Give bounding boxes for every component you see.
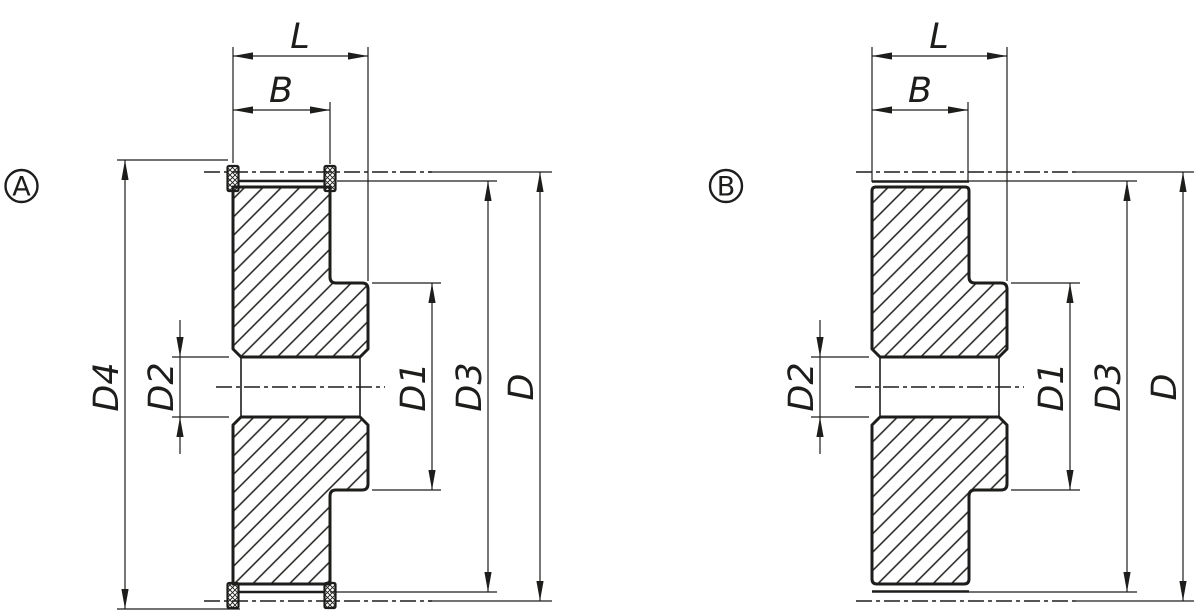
dim-label-l: L bbox=[929, 17, 949, 57]
flange-bottom-right bbox=[325, 583, 336, 608]
dim-label-b: B bbox=[908, 71, 932, 111]
dim-label-d1: D1 bbox=[1032, 362, 1072, 411]
dim-label-d3: D3 bbox=[1089, 362, 1129, 411]
dim-label-d1: D1 bbox=[394, 362, 434, 411]
flange-bottom-left bbox=[228, 583, 239, 608]
pulley-a-upper-section bbox=[233, 187, 368, 357]
dim-label-d: D bbox=[1145, 374, 1185, 401]
pulley-b-upper-section bbox=[872, 187, 1007, 357]
dim-label-d2: D2 bbox=[782, 362, 822, 411]
flange-top-right bbox=[325, 166, 336, 191]
variant-b-badge-label: B bbox=[717, 172, 736, 203]
variant-a-badge-label: A bbox=[12, 172, 31, 203]
view-a: L B D4 D2 D1 D3 D A bbox=[6, 17, 553, 609]
dim-label-b: B bbox=[269, 71, 293, 111]
dim-label-d4: D4 bbox=[87, 362, 127, 411]
timing-pulley-technical-drawing: L B D4 D2 D1 D3 D A bbox=[0, 0, 1200, 614]
drawing-sheet: L B D4 D2 D1 D3 D A bbox=[0, 0, 1200, 614]
flange-top-left bbox=[228, 166, 239, 191]
pulley-a-lower-section bbox=[233, 417, 368, 584]
dim-label-l: L bbox=[290, 17, 310, 57]
dim-label-d3: D3 bbox=[450, 362, 490, 411]
pulley-b-lower-section bbox=[872, 417, 1007, 584]
dim-label-d: D bbox=[502, 374, 542, 401]
dim-label-d2: D2 bbox=[142, 362, 182, 411]
view-b: L B D2 D1 D3 D B bbox=[710, 17, 1194, 601]
